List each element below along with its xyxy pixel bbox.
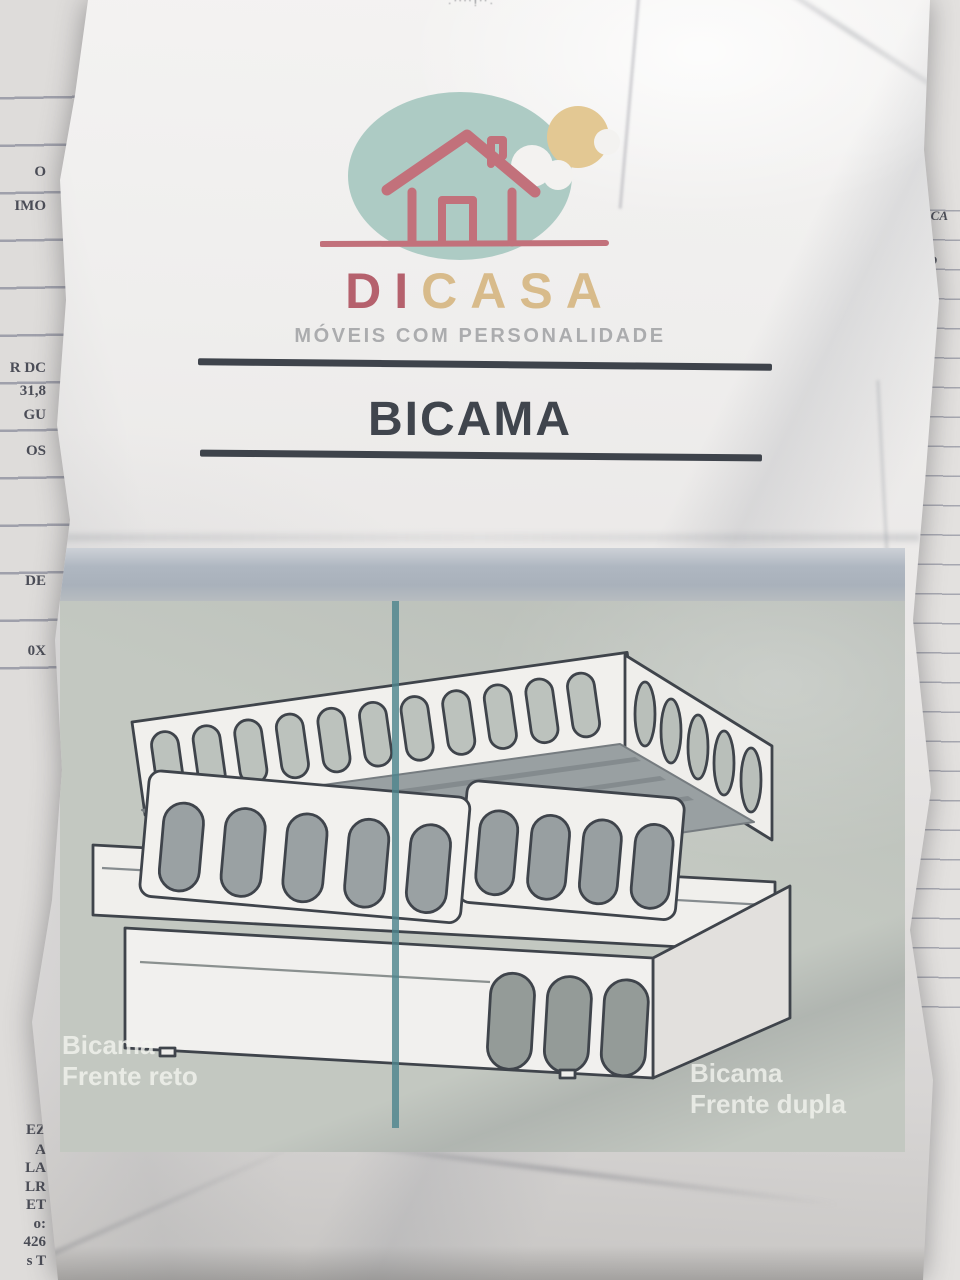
bed-foot xyxy=(560,1070,575,1078)
label-line: Frente reto xyxy=(62,1061,198,1092)
crease-line xyxy=(42,1134,318,1260)
teal-divider-line xyxy=(392,601,399,1128)
trundle-slots xyxy=(486,972,649,1077)
house-logo-icon xyxy=(320,80,640,256)
title-rule-top xyxy=(198,358,772,371)
front-guard-rail-left xyxy=(139,770,471,924)
label-bicama-frente-dupla: Bicama Frente dupla xyxy=(690,1058,846,1119)
label-line: Frente dupla xyxy=(690,1089,846,1120)
dicasa-logo: DICASA MÓVEIS COM PERSONALIDADE xyxy=(160,80,800,348)
brand-tagline: MÓVEIS COM PERSONALIDADE xyxy=(160,325,800,348)
cut-off-print-fragment: ·''''!''· xyxy=(448,0,496,9)
label-line: Bicama xyxy=(690,1058,846,1089)
label-line: Bicama xyxy=(62,1030,198,1061)
front-guard-rail-right xyxy=(457,780,685,921)
brand-casa: CASA xyxy=(421,263,615,319)
bed-illustration: Bicama Frente reto Bicama Frente dupla xyxy=(60,548,905,1152)
manual-cover-page: ·''''!''· xyxy=(0,0,960,1280)
brand-wordmark: DICASA xyxy=(160,266,800,316)
crease-line xyxy=(40,534,920,541)
label-bicama-frente-reto: Bicama Frente reto xyxy=(62,1030,198,1091)
paper-bottom-shadow xyxy=(0,1246,960,1280)
manual-cover-wrap: ·''''!''· xyxy=(0,0,960,1280)
page-title: BICAMA xyxy=(0,392,940,447)
title-rule-bottom xyxy=(200,450,762,462)
brand-di: DI xyxy=(345,263,421,319)
